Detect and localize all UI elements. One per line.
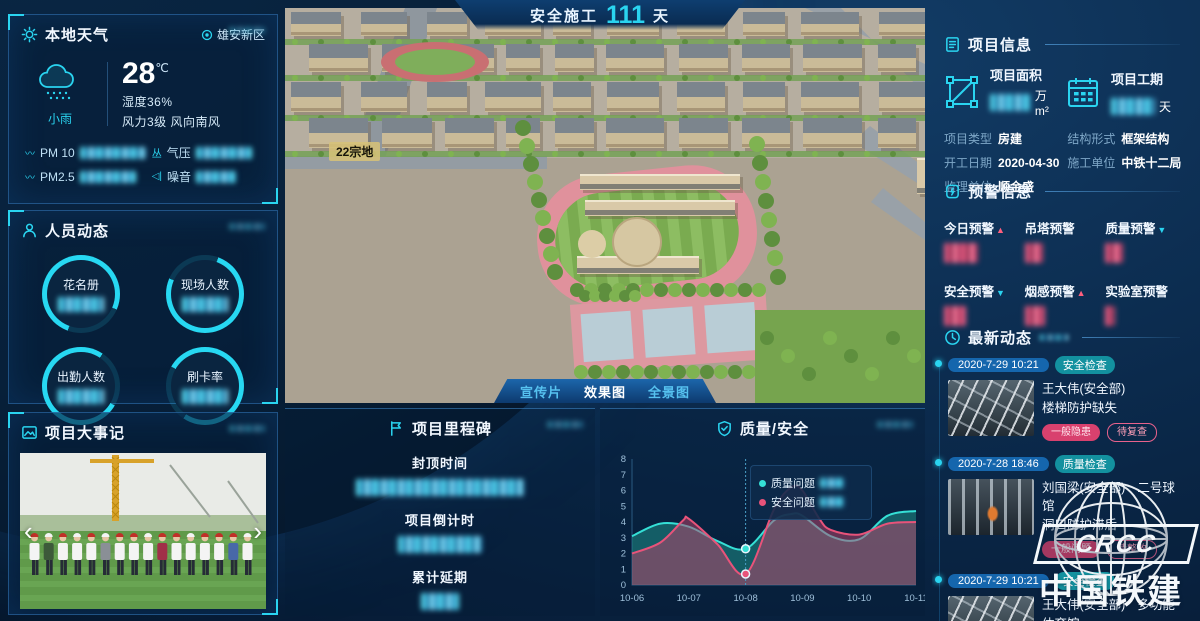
wind-value: 风力3级 风向南风: [122, 113, 221, 130]
svg-text:6: 6: [621, 486, 626, 497]
field-label: 施工单位: [1067, 156, 1115, 170]
project-info-title: 项目信息: [968, 34, 1032, 55]
person-name: 刘国梁(安全部): [1042, 481, 1125, 495]
update-body: 王大伟(安全部)多功能体育馆楼梯防护缺失一般隐患待复查: [948, 596, 1186, 621]
haze-icon: 〰: [25, 145, 35, 160]
stat-value: 万m²: [990, 87, 1059, 118]
rain-cloud-icon: [35, 61, 85, 103]
flag-icon: [388, 420, 405, 437]
blurred-value: [1025, 243, 1043, 263]
blurred-value: [944, 243, 978, 263]
field-value: 房建: [998, 132, 1022, 146]
blurred-value: [58, 389, 104, 404]
legend-name: 质量问题: [771, 475, 815, 491]
weather-panel: 本地天气 雄安新区 小雨 28℃ 湿度36% 风力3级 风向南风 〰PM 1: [8, 14, 278, 204]
field-value: 中铁十二局: [1121, 156, 1181, 170]
personnel-panel: 人员动态 花名册现场人数出勤人数刷卡率: [8, 210, 278, 404]
update-issue: 楼梯防护缺失: [1042, 399, 1164, 418]
trend-up-icon: ▲: [996, 225, 1005, 235]
update-text: 王大伟(安全部)楼梯防护缺失一般隐患待复查: [1042, 380, 1164, 442]
milestone-title: 项目里程碑: [412, 418, 492, 439]
weather-metric: 丛气压: [152, 144, 263, 161]
blurred-value: [990, 94, 1031, 111]
update-item[interactable]: 2020-7-28 18:46质量检查刘国梁(安全部)二号球馆洞口防护滞后一般问…: [948, 455, 1186, 559]
decor-blur: [229, 425, 265, 432]
field-label: 开工日期: [944, 156, 992, 170]
warning-item: 质量预警▼: [1105, 218, 1180, 263]
header-line: [1045, 44, 1180, 45]
warning-item: 吊塔预警: [1025, 218, 1100, 263]
decor-blur: [877, 421, 913, 428]
view-tab-全景图[interactable]: 全景图: [648, 382, 690, 401]
updates-title: 最新动态: [968, 327, 1032, 348]
project-stat: 项目面积万m²: [944, 65, 1059, 118]
stat-label: 项目工期: [1111, 69, 1180, 88]
update-date-badge: 2020-7-29 10:21: [948, 358, 1049, 372]
carousel-prev-button[interactable]: ‹: [20, 512, 37, 550]
area-measure-icon: [944, 74, 980, 110]
header-line: [1045, 191, 1180, 192]
stat-value: 天: [1111, 98, 1180, 115]
milestone-label: 封顶时间: [356, 453, 524, 472]
stat-label: 项目面积: [990, 65, 1059, 84]
update-body: 刘国梁(安全部)二号球馆洞口防护滞后一般问题待整改: [948, 479, 1186, 559]
milestone-label: 累计延期: [412, 567, 468, 586]
warnings-title: 预警信息: [968, 181, 1032, 202]
warning-label: 安全预警▼: [944, 281, 1019, 300]
land-parcel-label: 22宗地: [329, 142, 380, 161]
clock-icon: [944, 329, 961, 346]
milestone-item: 项目倒计时: [398, 510, 482, 554]
safety-days-value: 111: [606, 3, 645, 28]
calendar-icon: [1065, 74, 1101, 110]
warnings-panel: 预警信息 今日预警▲吊塔预警质量预警▼安全预警▼烟感预警▲实验室预警: [932, 172, 1192, 314]
update-tags: 一般问题待整改: [1042, 539, 1186, 559]
noise-icon: ◁|: [152, 171, 162, 182]
latest-updates-panel: 最新动态 2020-7-29 10:21安全检查王大伟(安全部)楼梯防护缺失一般…: [932, 318, 1192, 621]
group-photo: [20, 453, 266, 609]
decor-blur: [1039, 334, 1069, 341]
trend-up-icon: ▲: [1077, 288, 1086, 298]
weather-current: 小雨 28℃ 湿度36% 风力3级 风向南风: [9, 49, 277, 132]
warning-label: 今日预警▲: [944, 218, 1019, 237]
blurred-value: [356, 479, 524, 496]
update-tag: 待整改: [1107, 540, 1157, 559]
dashboard-root: 安全施工 111 天 本地天气 雄安新区 小雨 28℃: [0, 0, 1200, 621]
gauge-label: 现场人数: [181, 276, 229, 293]
metric-label: 噪音: [167, 168, 191, 185]
quality-safety-title: 质量/安全: [740, 418, 809, 439]
gauge-label: 刷卡率: [187, 368, 223, 385]
blurred-value: [80, 147, 146, 159]
alert-icon: [944, 183, 961, 200]
svg-text:5: 5: [621, 501, 626, 512]
project-events-panel: 项目大事记 ‹ ›: [8, 412, 278, 615]
site-render: [285, 8, 925, 403]
personnel-gauge: 花名册: [42, 255, 120, 333]
update-header: 2020-7-29 10:21安全检查: [948, 356, 1186, 374]
carousel-next-button[interactable]: ›: [249, 512, 266, 550]
field-value: 2020-04-30: [998, 156, 1059, 170]
update-photo: [948, 596, 1034, 621]
blurred-value: [196, 171, 236, 183]
project-stats: 项目面积万m²项目工期天: [932, 59, 1192, 120]
gauge-label: 出勤人数: [57, 368, 105, 385]
update-photo: [948, 479, 1034, 535]
tooltip-row: 安全问题: [759, 494, 863, 510]
warning-value: [1025, 243, 1100, 263]
field-label: 项目类型: [944, 132, 992, 146]
safety-days-unit: 天: [653, 5, 670, 26]
update-issue: 洞口防护滞后: [1042, 516, 1186, 535]
svg-text:4: 4: [621, 517, 626, 528]
quality-safety-panel: 质量/安全 01234567810-0610-0710-0810-0910-10…: [600, 408, 925, 616]
milestone-panel: 项目里程碑 封顶时间项目倒计时累计延期: [285, 408, 595, 616]
update-text: 王大伟(安全部)多功能体育馆楼梯防护缺失一般隐患待复查: [1042, 596, 1186, 621]
divider: [107, 62, 108, 126]
gauge-content: 花名册: [42, 255, 120, 333]
svg-text:10-06: 10-06: [620, 593, 644, 604]
svg-text:10-11: 10-11: [904, 593, 925, 604]
field-label: 结构形式: [1067, 132, 1115, 146]
photo-icon: [21, 424, 38, 441]
events-title: 项目大事记: [45, 422, 125, 443]
decor-blur: [547, 421, 583, 428]
blurred-value: [182, 297, 228, 312]
stat-unit: 天: [1159, 98, 1171, 115]
weather-metrics: 〰PM 10丛气压〰PM2.5◁|噪音: [9, 132, 277, 185]
location-pin-icon: [201, 29, 213, 41]
personnel-title: 人员动态: [45, 220, 109, 241]
blurred-value: [58, 297, 104, 312]
metric-label: PM 10: [40, 146, 75, 160]
update-type-badge: 安全检查: [1055, 356, 1115, 374]
shield-check-icon: [716, 420, 733, 437]
blurred-value: [182, 389, 228, 404]
pressure-icon: 丛: [152, 145, 162, 160]
decor-blur: [229, 223, 265, 230]
warning-label: 烟感预警▲: [1025, 281, 1100, 300]
project-field: 施工单位中铁十二局: [1067, 154, 1181, 171]
svg-text:10-07: 10-07: [677, 593, 701, 604]
milestone-label: 项目倒计时: [398, 510, 482, 529]
svg-text:7: 7: [621, 470, 626, 481]
view-tab-效果图[interactable]: 效果图: [584, 382, 626, 401]
metric-label: PM2.5: [40, 170, 75, 184]
warning-item: 今日预警▲: [944, 218, 1019, 263]
trend-down-icon: ▼: [1157, 225, 1166, 235]
gauge-label: 花名册: [63, 276, 99, 293]
svg-text:10-09: 10-09: [790, 593, 814, 604]
warning-value: [944, 243, 1019, 263]
person-icon: [21, 222, 38, 239]
update-person: 王大伟(安全部): [1042, 380, 1164, 399]
blurred-value: [421, 593, 459, 610]
personnel-gauges: 花名册现场人数出勤人数刷卡率: [9, 245, 277, 425]
events-photo: ‹ ›: [20, 453, 266, 609]
legend-dot: [759, 499, 766, 506]
svg-text:2: 2: [621, 549, 626, 560]
trend-down-icon: ▼: [996, 288, 1005, 298]
warning-value: [1105, 243, 1180, 263]
tooltip-row: 质量问题: [759, 475, 863, 491]
update-item[interactable]: 2020-7-29 10:21安全检查王大伟(安全部)多功能体育馆楼梯防护缺失一…: [948, 572, 1186, 621]
field-value: 框架结构: [1121, 132, 1169, 146]
person-name: 王大伟(安全部): [1042, 382, 1125, 396]
svg-text:1: 1: [621, 564, 626, 575]
blurred-value: [196, 147, 252, 159]
project-stat: 项目工期天: [1065, 65, 1180, 118]
blurred-value: [820, 497, 844, 507]
update-type-badge: 安全检查: [1055, 572, 1115, 590]
warning-label: 实验室预警: [1105, 281, 1180, 300]
blurred-value: [1111, 98, 1155, 115]
update-date-badge: 2020-7-29 10:21: [948, 574, 1049, 588]
project-field: 开工日期2020-04-30: [944, 154, 1059, 171]
svg-text:8: 8: [621, 454, 626, 465]
weather-metric: 〰PM2.5: [25, 168, 146, 185]
update-person: 王大伟(安全部)多功能体育馆: [1042, 596, 1186, 621]
legend-name: 安全问题: [771, 494, 815, 510]
svg-text:10-10: 10-10: [847, 593, 871, 604]
milestone-item: 累计延期: [412, 567, 468, 611]
weather-title: 本地天气: [45, 24, 109, 45]
metric-label: 气压: [167, 144, 191, 161]
update-tag: 待复查: [1107, 423, 1157, 442]
person-name: 王大伟(安全部): [1042, 598, 1125, 612]
blurred-value: [820, 478, 844, 488]
update-person: 刘国梁(安全部)二号球馆: [1042, 479, 1186, 517]
svg-text:0: 0: [621, 580, 626, 591]
svg-text:10-08: 10-08: [733, 593, 757, 604]
warnings-grid: 今日预警▲吊塔预警质量预警▼安全预警▼烟感预警▲实验室预警: [932, 206, 1192, 326]
update-header: 2020-7-28 18:46质量检查: [948, 455, 1186, 473]
stat-unit: 万m²: [1035, 87, 1059, 118]
update-date-badge: 2020-7-28 18:46: [948, 457, 1049, 471]
weather-condition: 小雨: [27, 110, 93, 127]
safety-days-banner: 安全施工 111 天: [455, 0, 745, 30]
svg-text:3: 3: [621, 533, 626, 544]
view-tabs: 宣传片效果图全景图: [494, 379, 716, 403]
site-render-view: 22宗地 宣传片效果图全景图: [285, 8, 925, 403]
update-type-badge: 质量检查: [1055, 455, 1115, 473]
update-photo: [948, 380, 1034, 436]
chart-tooltip: 质量问题安全问题: [750, 465, 872, 520]
humidity-value: 湿度36%: [122, 93, 221, 110]
project-info-panel: 项目信息 项目面积万m²项目工期天 项目类型房建结构形式框架结构开工日期2020…: [932, 25, 1192, 170]
temperature-value: 28℃: [122, 57, 221, 90]
update-body: 王大伟(安全部)楼梯防护缺失一般隐患待复查: [948, 380, 1186, 442]
update-header: 2020-7-29 10:21安全检查: [948, 572, 1186, 590]
sun-icon: [21, 26, 38, 43]
header-line: [1082, 337, 1180, 338]
update-item[interactable]: 2020-7-29 10:21安全检查王大伟(安全部)楼梯防护缺失一般隐患待复查: [948, 356, 1186, 442]
update-tag: 一般隐患: [1042, 424, 1100, 441]
warning-label: 吊塔预警: [1025, 218, 1100, 237]
project-field: 结构形式框架结构: [1067, 130, 1181, 147]
document-icon: [944, 36, 961, 53]
legend-dot: [759, 480, 766, 487]
update-tags: 一般隐患待复查: [1042, 422, 1164, 442]
update-tag: 一般问题: [1042, 541, 1100, 558]
weather-metric: ◁|噪音: [152, 168, 263, 185]
decor-blur: [229, 27, 265, 34]
blurred-value: [80, 171, 136, 183]
view-tab-宣传片[interactable]: 宣传片: [520, 382, 562, 401]
gauge-content: 现场人数: [166, 255, 244, 333]
updates-list: 2020-7-29 10:21安全检查王大伟(安全部)楼梯防护缺失一般隐患待复查…: [932, 352, 1192, 621]
milestone-item: 封顶时间: [356, 453, 524, 497]
milestone-items: 封顶时间项目倒计时累计延期: [285, 443, 595, 611]
safety-label: 安全施工: [530, 5, 598, 26]
warning-label: 质量预警▼: [1105, 218, 1180, 237]
blurred-value: [1105, 243, 1123, 263]
blurred-value: [398, 536, 482, 553]
haze-icon: 〰: [25, 169, 35, 184]
update-text: 刘国梁(安全部)二号球馆洞口防护滞后一般问题待整改: [1042, 479, 1186, 559]
weather-metric: 〰PM 10: [25, 144, 146, 161]
project-field: 项目类型房建: [944, 130, 1059, 147]
personnel-gauge: 现场人数: [166, 255, 244, 333]
